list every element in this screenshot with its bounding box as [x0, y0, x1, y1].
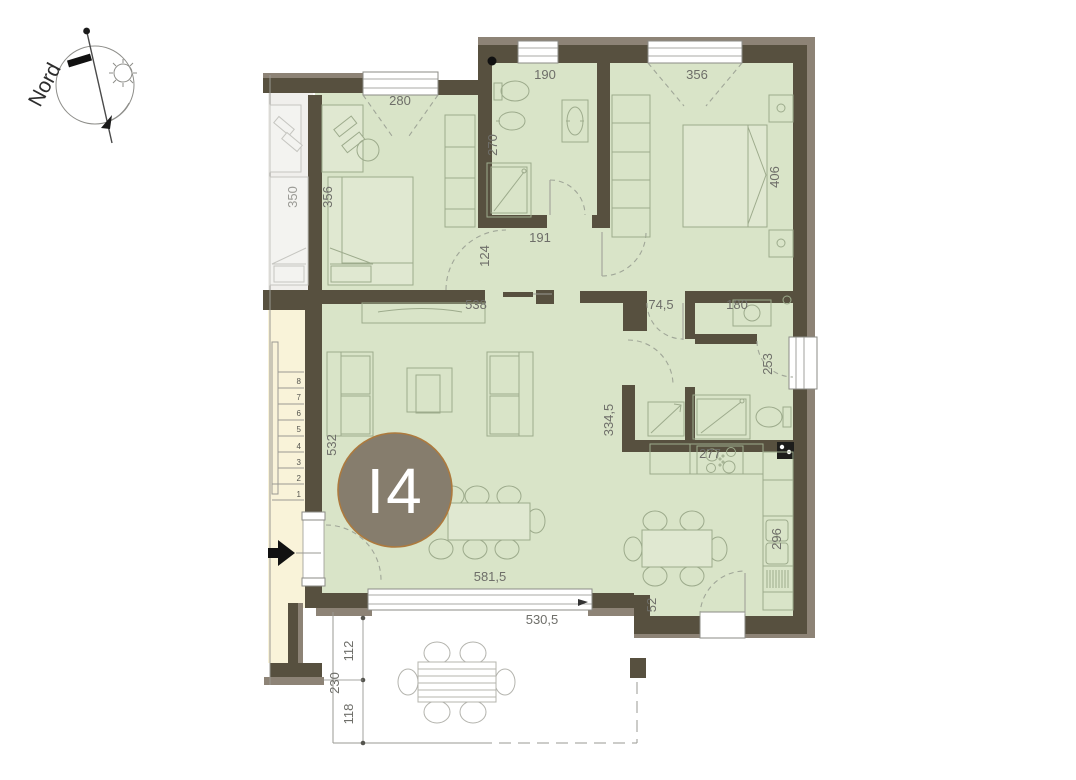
- unit-badge: I4: [338, 433, 452, 547]
- terrace-pillar: [630, 658, 646, 678]
- dim-counter-296: 296: [769, 528, 784, 550]
- dim-window-530-5: 530,5: [526, 612, 559, 627]
- unit-label: I4: [366, 455, 423, 527]
- stair-step-number: 3: [297, 458, 302, 467]
- stair-step-number: 2: [297, 474, 302, 483]
- dim-52: 52: [644, 598, 659, 612]
- single-bed: [328, 177, 413, 285]
- stair-step-number: 1: [297, 490, 302, 499]
- dim-laundry-180: 180: [726, 297, 748, 312]
- terrace: [322, 612, 637, 745]
- compass-north-dot-icon: [83, 28, 90, 35]
- dim-window-581-5: 581,5: [474, 569, 507, 584]
- stair-step-number: 8: [297, 377, 302, 386]
- stair-step-number: 4: [297, 442, 302, 451]
- dim-terrace-112: 112: [341, 641, 356, 662]
- compass-needle-bar-icon: [68, 57, 91, 64]
- dim-window-356: 356: [686, 67, 708, 82]
- dim-kitchen-277: 277: [699, 446, 721, 461]
- dim-window-280: 280: [389, 93, 411, 108]
- north-label: Nord: [24, 59, 66, 110]
- dim-bath-190: 190: [534, 67, 556, 82]
- double-bed: [683, 125, 767, 227]
- door-pivot-dot: [488, 57, 497, 66]
- dim-bath-270: 270: [485, 134, 500, 156]
- dim-living-532: 532: [324, 434, 339, 456]
- dim-bedroom2-406: 406: [767, 166, 782, 188]
- window-bathroom: [518, 41, 558, 63]
- window-bedroom2: [648, 41, 742, 63]
- dim-bedroom1-356: 356: [320, 186, 335, 208]
- window-bedroom1: [363, 72, 438, 95]
- dim-living-538: 538: [465, 297, 487, 312]
- dim-bath-191: 191: [529, 230, 551, 245]
- window-right: [789, 337, 817, 389]
- dim-hall-74-5: 74,5: [648, 297, 673, 312]
- kitchen-dining-table: [642, 530, 712, 567]
- floorplan-canvas: Nord: [0, 0, 1076, 780]
- dim-terrace-230: 230: [327, 672, 342, 694]
- dim-neighbor-350: 350: [285, 186, 300, 208]
- window-terrace-door: [368, 589, 592, 610]
- terrace-table-group: [398, 642, 515, 723]
- terrace-table: [418, 662, 496, 702]
- stair-step-number: 6: [297, 409, 302, 418]
- dim-window-253: 253: [760, 353, 775, 375]
- sun-icon: [109, 59, 137, 87]
- north-compass: Nord: [24, 28, 137, 143]
- dim-terrace-118: 118: [341, 704, 356, 725]
- pillow: [331, 266, 371, 282]
- dim-hall-334-5: 334,5: [601, 404, 616, 437]
- stair-step-number: 5: [297, 425, 302, 434]
- pillow: [274, 266, 304, 282]
- boiler-symbol: [777, 442, 794, 459]
- dim-niche-124: 124: [477, 245, 492, 267]
- stair-step-number: 7: [297, 393, 302, 402]
- dining-table: [448, 503, 530, 540]
